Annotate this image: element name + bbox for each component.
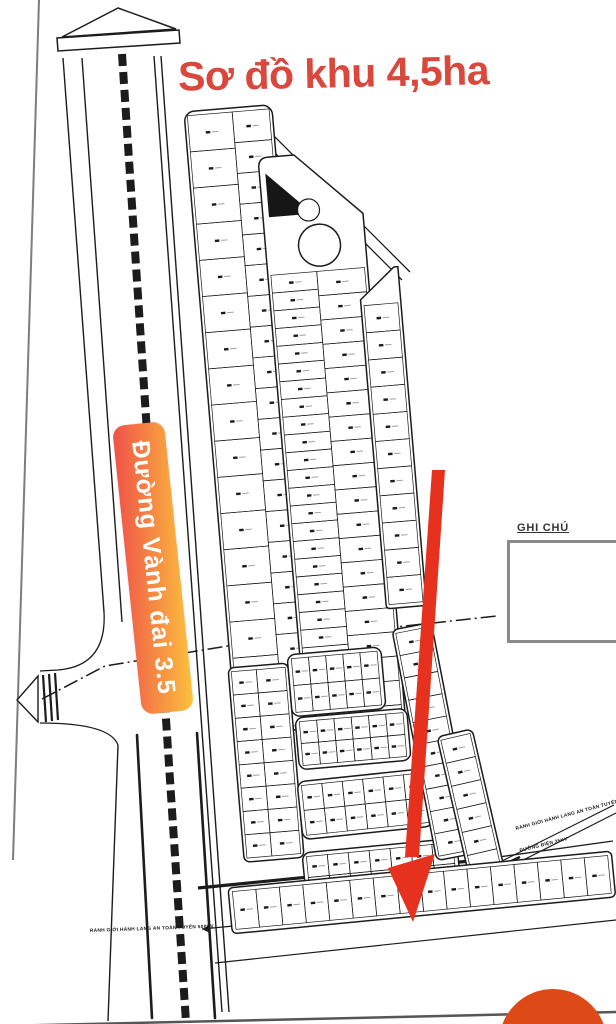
corridor-right-label: RANH GIỚI HÀNH LANG AN TOÀN TUYẾN ĐIỆN 5… <box>514 788 616 832</box>
block-f <box>295 708 411 770</box>
legend-title: GHI CHÚ <box>517 522 569 534</box>
site-plan-page: TIM ĐƯỜNG QUY HOẠCHRANH GIỚI HÀNH LANG A… <box>0 0 616 1024</box>
corridor-left-label: RANH GIỚI HÀNH LANG AN TOÀN TUYẾN 500KV <box>90 922 215 934</box>
west-arrow-icon <box>17 676 38 722</box>
block-e <box>287 647 386 717</box>
page-left-border <box>13 0 39 860</box>
site-plan-drawing: TIM ĐƯỜNG QUY HOẠCHRANH GIỚI HÀNH LANG A… <box>0 0 616 1024</box>
page-title: Sơ đồ khu 4,5ha <box>178 46 529 100</box>
legend-box <box>507 540 616 643</box>
